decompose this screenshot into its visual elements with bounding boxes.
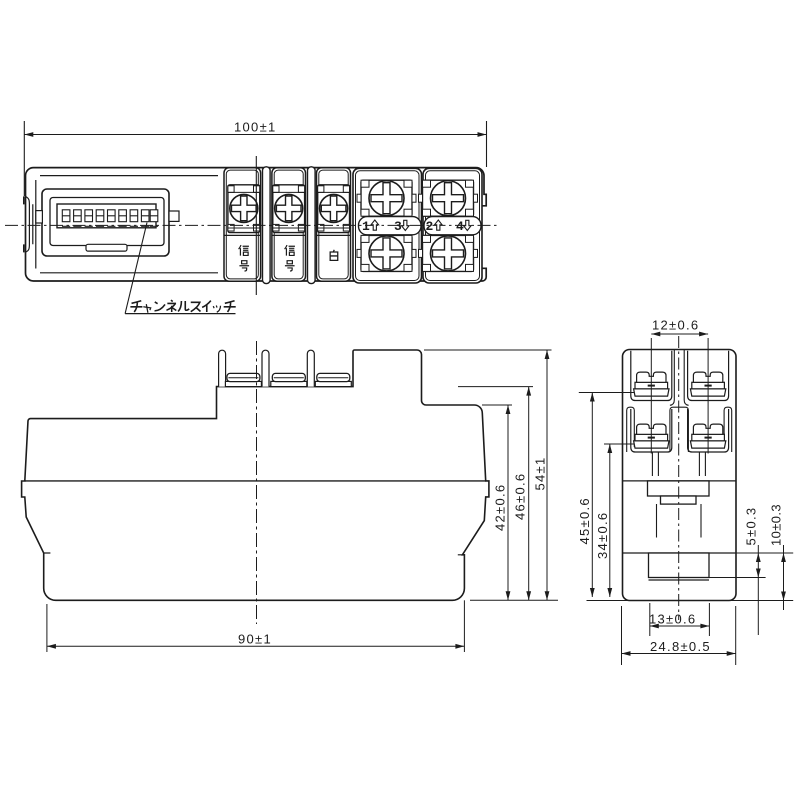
svg-text:2: 2 xyxy=(426,219,434,234)
svg-text:3: 3 xyxy=(394,219,402,234)
svg-text:12±0.6: 12±0.6 xyxy=(652,318,699,333)
svg-text:42±0.6: 42±0.6 xyxy=(493,484,508,531)
svg-text:10±0.3: 10±0.3 xyxy=(769,504,784,546)
svg-text:90±1: 90±1 xyxy=(238,632,272,647)
svg-text:100±1: 100±1 xyxy=(234,120,277,135)
svg-text:46±0.6: 46±0.6 xyxy=(513,473,528,520)
svg-text:4: 4 xyxy=(456,219,464,234)
svg-text:24.8±0.5: 24.8±0.5 xyxy=(650,639,711,654)
svg-text:13±0.6: 13±0.6 xyxy=(649,612,696,627)
svg-text:1: 1 xyxy=(362,219,370,234)
svg-text:45±0.6: 45±0.6 xyxy=(577,497,592,544)
svg-text:34±0.6: 34±0.6 xyxy=(595,512,610,559)
svg-text:54±1: 54±1 xyxy=(533,456,548,490)
svg-text:5±0.3: 5±0.3 xyxy=(743,507,758,546)
